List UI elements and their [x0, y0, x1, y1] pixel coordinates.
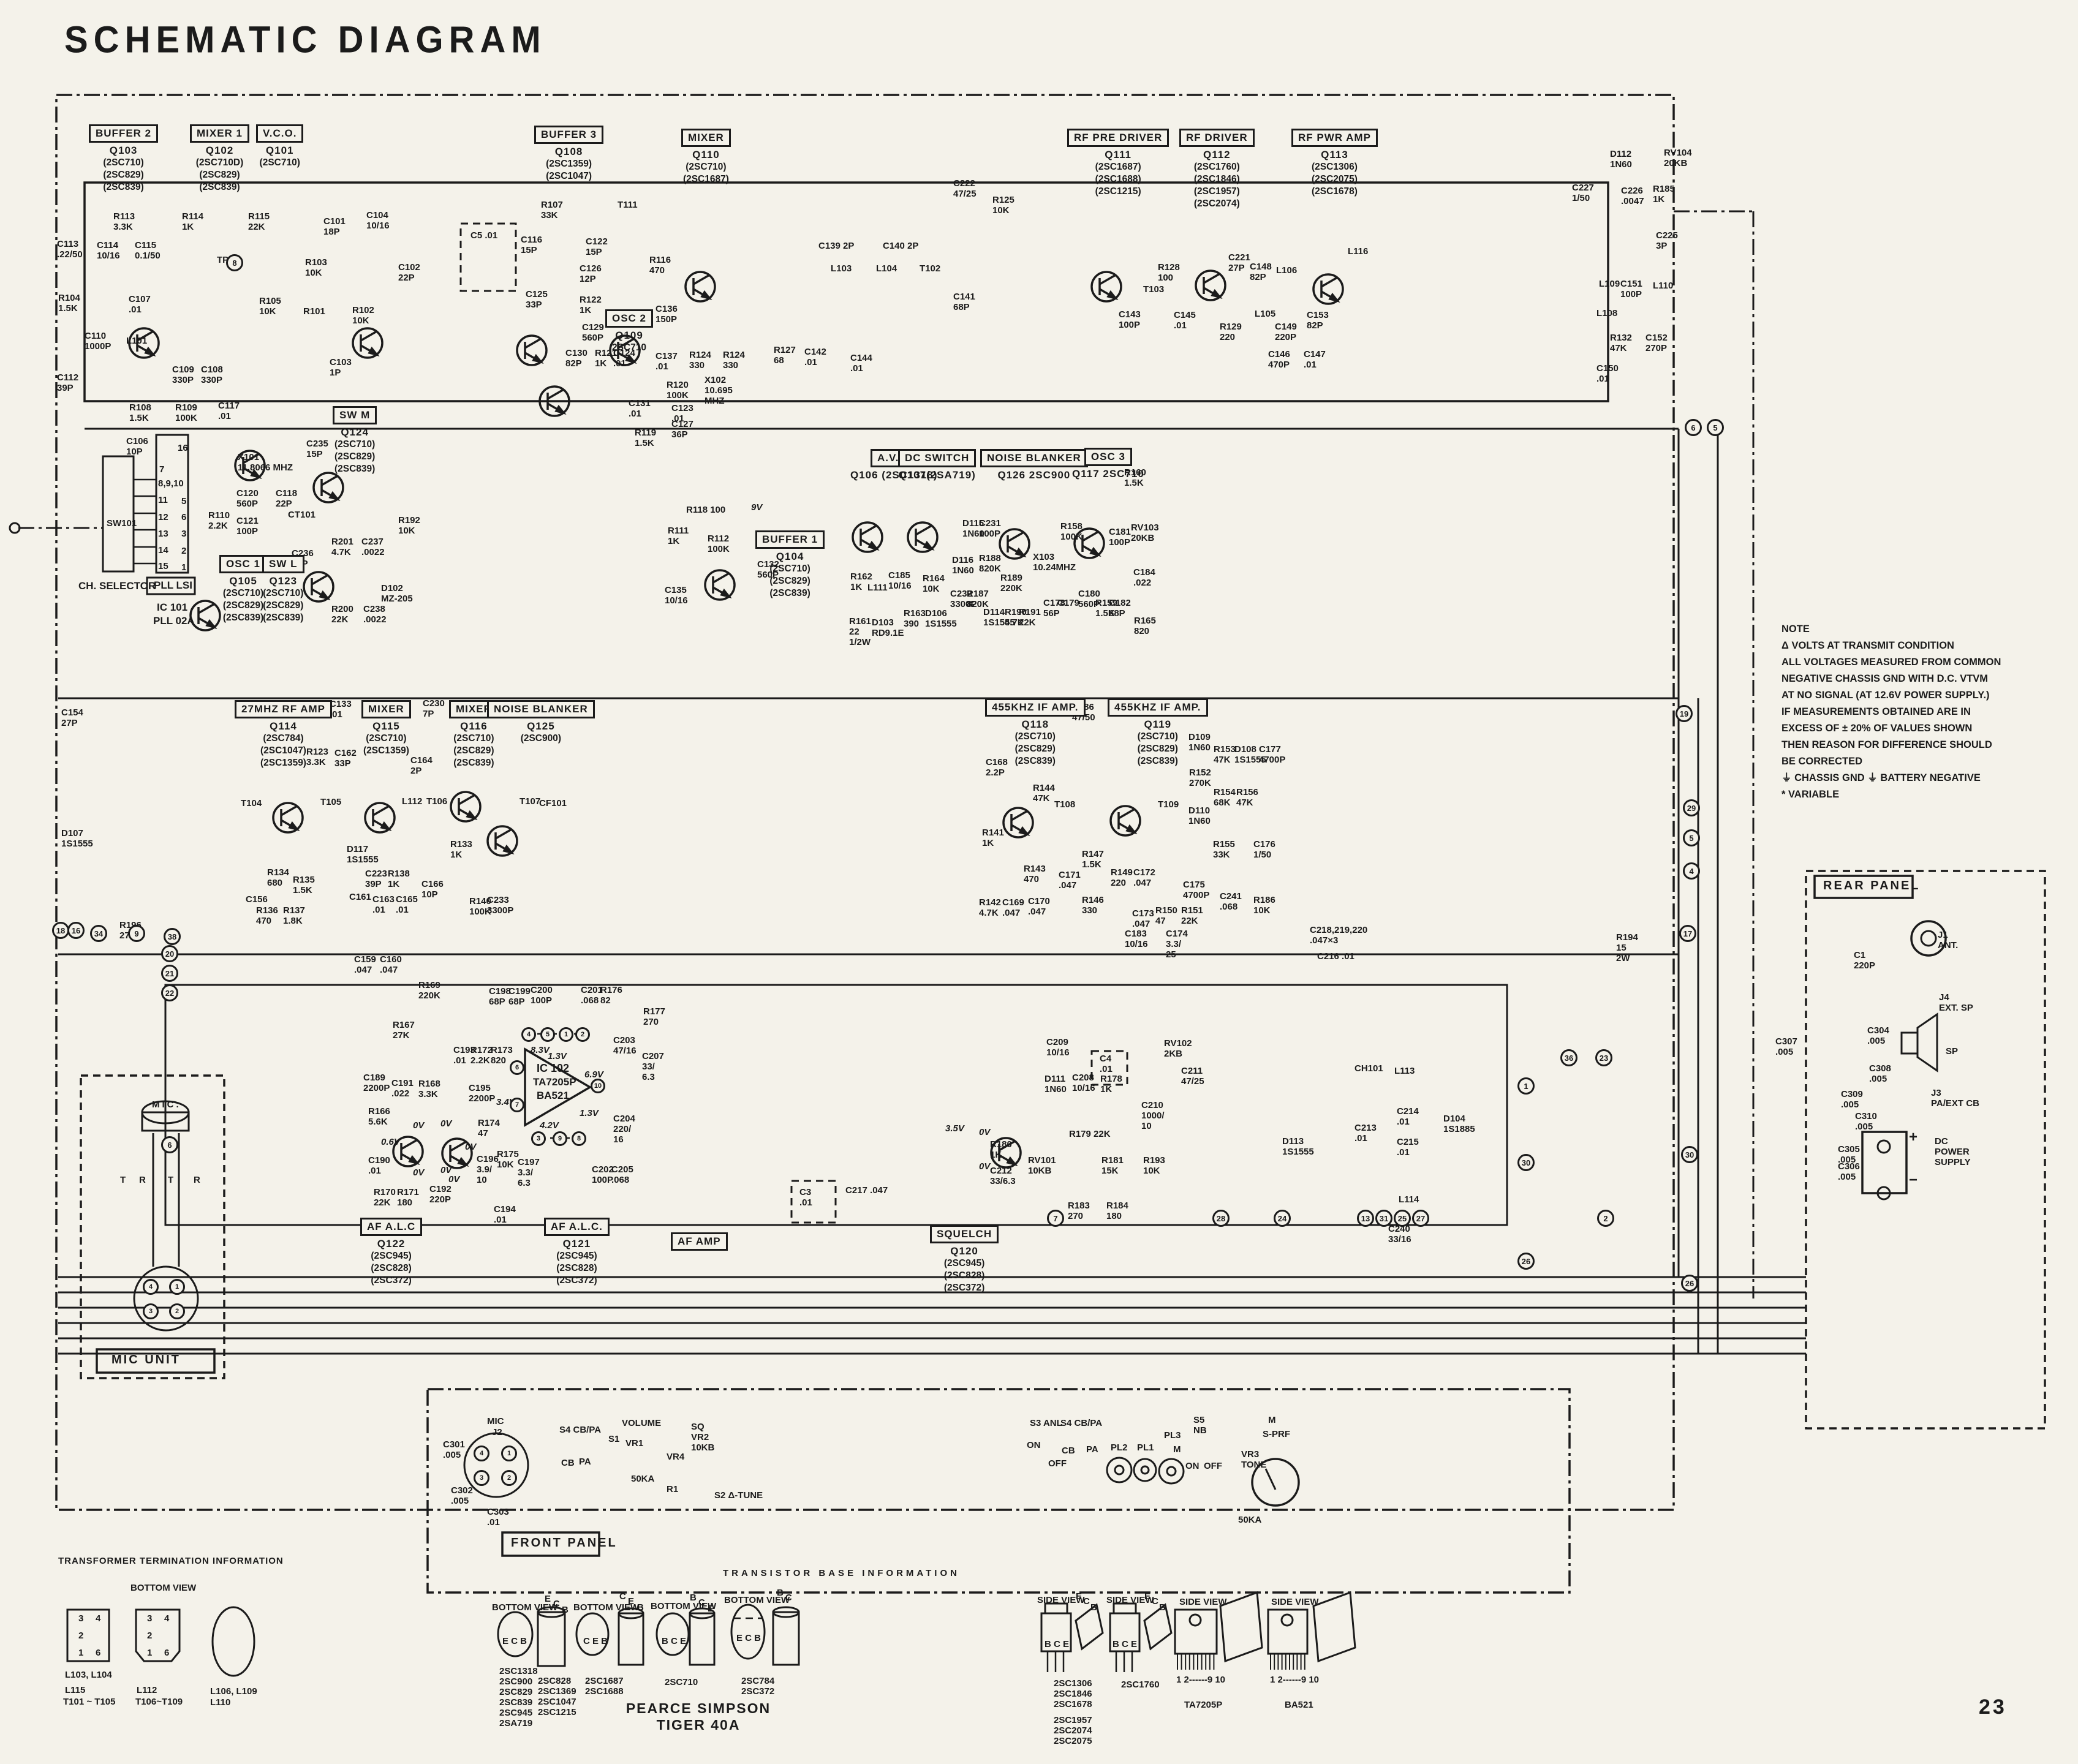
block-27mhz-rf-amp: 27MHZ RF AMPQ114(2SC784)(2SC1047)(2SC135… — [235, 700, 332, 769]
label-x103: X103 10.24MHZ — [1033, 552, 1076, 573]
label-c190: C190 .01 — [368, 1155, 390, 1176]
junction-1: 1 — [559, 1027, 573, 1042]
label-r179: R179 22K — [1069, 1129, 1111, 1139]
label-c107: C107 .01 — [129, 294, 151, 315]
label-l116: L116 — [1348, 246, 1368, 257]
label-d107: D107 1S1555 — [61, 828, 93, 849]
label-rv102: RV102 2KB — [1164, 1038, 1192, 1059]
label-c151: C151 100P — [1620, 279, 1642, 300]
label-m: M — [1173, 1444, 1181, 1455]
label-c179: C179 — [1057, 598, 1079, 608]
label-c211: C211 47/25 — [1181, 1066, 1204, 1087]
block-transistor-type: (2SC1359) — [235, 757, 332, 769]
label-r189: R189 220K — [1000, 573, 1022, 594]
label-c303: C303 .01 — [487, 1507, 509, 1528]
label-r174: R174 47 — [478, 1118, 500, 1139]
label-d112: D112 1N60 — [1610, 149, 1632, 170]
block-transistor-type: (2SC2074) — [1179, 198, 1255, 210]
block-title: 455KHZ IF AMP. — [985, 698, 1086, 717]
block-transistor-ref: Q102 — [190, 145, 249, 157]
block-transistor-type: (2SC829) — [333, 451, 377, 463]
label-pl2: PL2 — [1111, 1442, 1128, 1453]
label-ba521: BA521 — [537, 1090, 569, 1101]
block-transistor-type: (2SC829) — [219, 600, 267, 612]
label-r109: R109 100K — [175, 402, 197, 423]
label-bottom: BOTTOM VIEW — [651, 1601, 716, 1611]
label-r167: R167 27K — [393, 1020, 415, 1041]
label-ch101: CH101 — [1354, 1063, 1383, 1074]
label-c148: C148 82P — [1250, 262, 1272, 282]
label-sq: SQ VR2 10KB — [691, 1422, 714, 1453]
label-8-3v: 8.3V — [531, 1045, 550, 1055]
label-c218-219-220: C218,219,220 .047×3 — [1310, 925, 1367, 946]
block-transistor-type: (2SC1306) — [1291, 161, 1378, 173]
junction-1: 1 — [169, 1279, 185, 1295]
label-14: 14 — [158, 545, 168, 556]
label-b: B C E — [1045, 1639, 1069, 1649]
label-16: 16 — [178, 443, 188, 453]
label-t104: T104 — [241, 798, 262, 809]
label-l103: L103, L104 — [65, 1670, 112, 1680]
label-c: C — [1083, 1596, 1090, 1607]
label-2sc784: 2SC784 2SC372 — [741, 1676, 774, 1697]
label-r107: R107 33K — [541, 200, 563, 221]
transistor-symbol — [1111, 806, 1140, 835]
label-volume: VOLUME — [622, 1418, 661, 1428]
label-r132: R132 47K — [1610, 333, 1632, 353]
label-c141: C141 68P — [953, 292, 975, 312]
label-pll: PLL LSI — [154, 580, 192, 590]
label-4: 4 — [164, 1613, 169, 1624]
block-transistor-ref: Q112 — [1179, 149, 1255, 161]
block-transistor-ref: Q104 — [755, 551, 825, 563]
junction-5: 5 — [1707, 419, 1724, 436]
junction-5: 5 — [1683, 829, 1700, 846]
label-c150: C150 .01 — [1596, 363, 1619, 384]
block-transistor-type: (2SC839) — [985, 755, 1086, 767]
block-transistor-type: (2SC1359) — [361, 745, 411, 757]
label-c230: C230 7P — [423, 698, 445, 719]
label-r186: R186 10K — [1253, 895, 1275, 916]
block-transistor-ref: Q124 — [333, 426, 377, 439]
label-c121: C121 100P — [236, 516, 259, 537]
label-d111: D111 1N60 — [1045, 1074, 1067, 1095]
junction-9: 9 — [553, 1131, 567, 1146]
label-l106: L106, L109 — [210, 1686, 257, 1697]
transistor-symbol — [451, 792, 480, 821]
label-c144: C144 .01 — [850, 353, 872, 374]
label-r156: R156 47K — [1236, 787, 1258, 808]
label-c115: C115 0.1/50 — [135, 240, 161, 261]
label-c104: C104 10/16 — [366, 210, 390, 231]
label-r129: R129 220 — [1220, 322, 1242, 342]
block-transistor-ref: Q111 — [1067, 149, 1169, 161]
label-r108: R108 1.5K — [129, 402, 151, 423]
block-transistor-type: (2SC710) — [361, 733, 411, 745]
block-transistor-ref: Q121 — [544, 1238, 610, 1250]
transistor-symbol — [853, 522, 882, 552]
transistor-symbol — [908, 522, 937, 552]
transistor-symbol — [705, 570, 735, 600]
block-osc-1: OSC 1Q105(2SC710)(2SC829)(2SC839) — [219, 555, 267, 624]
label-r161: R161 22 1/2W — [849, 616, 871, 647]
block-transistor-type: (2SC839) — [262, 612, 304, 624]
junction-7: 7 — [510, 1098, 524, 1112]
block-transistor-type: (2SC784) — [235, 733, 332, 745]
block-transistor-ref: Q101 — [256, 145, 303, 157]
label-c301: C301 .005 — [443, 1439, 465, 1460]
block-buffer-3: BUFFER 3Q108(2SC1359)(2SC1047) — [534, 126, 603, 183]
label-x102: X102 10.695 MHZ — [705, 375, 733, 406]
label-b: B — [777, 1588, 784, 1598]
label-vr3: VR3 TONE — [1241, 1449, 1266, 1470]
label-front: FRONT PANEL — [511, 1538, 618, 1548]
block-rf-pre-driver: RF PRE DRIVERQ111(2SC1687)(2SC1688)(2SC1… — [1067, 129, 1169, 198]
junction-26: 26 — [1517, 1253, 1535, 1270]
block-transistor-type: (2SC1047) — [534, 170, 603, 183]
label-c125: C125 33P — [526, 289, 548, 310]
label-t109: T109 — [1158, 799, 1179, 810]
label-1: 1 2------9 10 — [1176, 1675, 1225, 1685]
label-l104: L104 — [876, 263, 897, 274]
label-r102: R102 10K — [352, 305, 374, 326]
label-0v: 0V — [465, 1142, 476, 1152]
block-mixer-1: MIXER 1Q102(2SC710D)(2SC829)(2SC839) — [190, 124, 249, 194]
label-r128: R128 100 — [1158, 262, 1180, 283]
block-af-a-l-c: AF A.L.CQ122(2SC945)(2SC828)(2SC372) — [360, 1218, 422, 1287]
block-title: RF PRE DRIVER — [1067, 129, 1169, 147]
label-r105: R105 10K — [259, 296, 281, 317]
label-ic: IC 102 — [537, 1063, 569, 1074]
label-ct101: CT101 — [288, 510, 315, 520]
label-s-prf: S-PRF — [1263, 1429, 1290, 1439]
label-c199: C199 68P — [508, 986, 531, 1007]
label-c164: C164 2P — [410, 755, 433, 776]
label-r144: R144 47K — [1033, 783, 1055, 804]
label-3: 3 — [147, 1613, 152, 1624]
block-transistor-type: (2SC1846) — [1179, 173, 1255, 186]
label-d117: D117 1S1555 — [347, 844, 379, 865]
block-transistor-type: (2SC1957) — [1179, 186, 1255, 198]
junction-28: 28 — [1212, 1210, 1230, 1227]
label-c152: C152 270P — [1645, 333, 1668, 353]
label-c191: C191 .022 — [391, 1078, 414, 1099]
label-c137: C137 .01 — [656, 351, 678, 372]
label-j1: J1 ANT. — [1938, 930, 1958, 951]
label-c135: C135 10/16 — [665, 585, 688, 606]
block-transistor-ref: Q107(2SA719) — [898, 469, 976, 481]
transistor-symbol — [1092, 272, 1121, 301]
block-transistor-type: (2SC829) — [1108, 743, 1208, 755]
block-transistor-ref: Q115 — [361, 720, 411, 733]
label-c183: C183 10/16 — [1125, 929, 1148, 949]
label-c163: C163 .01 — [372, 894, 395, 915]
label-ch: CH. SELECTOR — [78, 581, 156, 591]
label-c200: C200 100P — [531, 985, 553, 1006]
label-11: 11 — [158, 495, 168, 505]
label-2sc1306: 2SC1306 2SC1846 2SC1678 — [1054, 1678, 1092, 1709]
label-c140: C140 2P — [883, 241, 918, 251]
label-c238: C238 .0022 — [363, 604, 387, 625]
block-sw-m: SW MQ124(2SC710)(2SC829)(2SC839) — [333, 406, 377, 475]
block-transistor-ref: Q114 — [235, 720, 332, 733]
label-j4: J4 EXT. SP — [1939, 992, 1973, 1013]
block-transistor-ref: Q119 — [1108, 718, 1208, 731]
junction-1: 1 — [1517, 1077, 1535, 1095]
label-c240: C240 33/16 — [1388, 1224, 1411, 1245]
label-r103: R103 10K — [305, 257, 327, 278]
block-transistor-type: (2SC1687) — [681, 173, 731, 186]
label-c156: C156 — [246, 894, 268, 905]
label-c202: C202 100P — [592, 1164, 614, 1185]
label-6-9v: 6.9V — [584, 1069, 603, 1080]
label-c172: C172 .047 — [1133, 867, 1155, 888]
label-ta7205p: TA7205P — [533, 1077, 576, 1087]
junction-31: 31 — [1375, 1210, 1392, 1227]
label-b: B C E — [1113, 1639, 1137, 1649]
label-c209: C209 10/16 — [1046, 1037, 1070, 1058]
label-c184: C184 .022 — [1133, 567, 1155, 588]
label-2sc1318: 2SC1318 2SC900 2SC829 2SC839 2SC945 2SA7… — [499, 1666, 538, 1728]
block-dc-switch: DC SWITCHQ107(2SA719) — [898, 449, 976, 481]
block-transistor-ref: Q122 — [360, 1238, 422, 1250]
label-r135: R135 1.5K — [293, 875, 315, 895]
label-13: 13 — [158, 529, 168, 539]
junction-29: 29 — [1683, 799, 1700, 816]
junction-3: 3 — [531, 1131, 546, 1146]
label-l113: L113 — [1394, 1066, 1415, 1076]
junction-8: 8 — [226, 254, 243, 271]
label-c166: C166 10P — [421, 879, 444, 900]
label-d102: D102 MZ-205 — [381, 583, 413, 604]
label-c: C — [1152, 1596, 1158, 1607]
label-l112: L112 — [137, 1685, 157, 1695]
block-transistor-ref: Q120 — [930, 1245, 999, 1257]
label-6: 6 — [164, 1648, 169, 1658]
junction-36: 36 — [1560, 1049, 1577, 1066]
label-12: 12 — [158, 512, 168, 522]
block-transistor-type: (2SC828) — [544, 1262, 610, 1275]
junction-6: 6 — [510, 1060, 524, 1075]
transistor-symbol — [353, 328, 382, 358]
block-af-amp: AF AMP — [671, 1232, 728, 1251]
junction-3: 3 — [143, 1303, 159, 1319]
label-c112: C112 39P — [57, 372, 78, 393]
label-s2: S2 Δ-TUNE — [714, 1490, 763, 1501]
transistor-symbol — [304, 572, 333, 601]
label-pl1: PL1 — [1137, 1442, 1154, 1453]
label-r104: R104 1.5K — [58, 293, 80, 314]
label-r176: R176 82 — [600, 985, 622, 1006]
block-transistor-ref: Q105 — [219, 575, 267, 587]
block-transistor-type: (2SC945) — [930, 1257, 999, 1270]
label-2sc1687: 2SC1687 2SC1688 — [585, 1676, 624, 1697]
label-pl3: PL3 — [1164, 1430, 1181, 1441]
block-transistor-type: (2SC1688) — [1067, 173, 1169, 186]
label-r178: R178 1K — [1100, 1074, 1122, 1095]
label-c161: C161 — [349, 892, 371, 902]
label-c310: C310 .005 — [1855, 1111, 1877, 1132]
label-l110: L110 — [1653, 281, 1673, 291]
label-c196: C196 3.9/ 10 — [477, 1154, 499, 1185]
label-t106-t109: T106~T109 — [135, 1697, 183, 1707]
label-c185: C185 10/16 — [888, 570, 912, 591]
label-c176: C176 1/50 — [1253, 839, 1275, 860]
label-b: B — [637, 1602, 644, 1613]
label-c195: C195 2200P — [469, 1083, 495, 1104]
label-d106: D106 1S1555 — [925, 608, 957, 629]
junction-38: 38 — [164, 928, 181, 945]
block-transistor-type: (2SC839) — [449, 757, 499, 769]
label-2sc828: 2SC828 2SC1369 2SC1047 2SC1215 — [538, 1676, 576, 1717]
block-transistor-type: (2SC829) — [89, 169, 158, 181]
label-d110: D110 1N60 — [1188, 805, 1211, 826]
label-c142: C142 .01 — [804, 347, 826, 367]
label-1: 1 2------9 10 — [1270, 1675, 1319, 1685]
label-r165: R165 820 — [1134, 616, 1156, 636]
label-c114: C114 10/16 — [97, 240, 120, 261]
transistor-symbol — [365, 803, 395, 832]
label-r141: R141 1K — [982, 827, 1004, 848]
label-2: 2 — [147, 1630, 152, 1641]
label-c: C — [698, 1597, 705, 1608]
label-c174: C174 3.3/ 25 — [1166, 929, 1188, 960]
label-r166: R166 5.6K — [368, 1106, 390, 1127]
label-r124: R124 330 — [689, 350, 711, 371]
schematic-page: SCHEMATIC DIAGRAM 23 PEARCE SIMPSON TIGE… — [0, 0, 2078, 1764]
label-r150: R150 47 — [1155, 905, 1177, 926]
label-c216: C216 .01 — [1317, 951, 1354, 962]
block-transistor-type: (2SC839) — [89, 181, 158, 194]
label-c227: C227 1/50 — [1572, 183, 1594, 203]
label-c221: C221 27P — [1228, 252, 1250, 273]
label-c123: C123 .01 — [671, 403, 693, 424]
block-transistor-ref: Q125 — [487, 720, 595, 733]
block-transistor-type: (2SC710) — [985, 731, 1086, 743]
block-transistor-type: (2SC829) — [449, 745, 499, 757]
block-title: V.C.O. — [256, 124, 303, 143]
label-r112: R112 100K — [708, 533, 730, 554]
label-r155: R155 33K — [1213, 839, 1235, 860]
junction-30: 30 — [1517, 1154, 1535, 1171]
label-r122: R122 1K — [580, 295, 602, 315]
label-2sc1760: 2SC1760 — [1121, 1679, 1160, 1690]
label-6: 6 — [181, 512, 186, 522]
label-c233: C233 3300P — [487, 895, 513, 916]
label-m: M — [1268, 1415, 1276, 1425]
label-d103: D103 RD9.1E — [872, 617, 904, 638]
label-l105: L105 — [1255, 309, 1275, 319]
label-c173: C173 .047 — [1132, 908, 1154, 929]
label-r118: R118 100 — [686, 505, 725, 515]
junction-3: 3 — [474, 1470, 489, 1486]
label-r168: R168 3.3K — [418, 1079, 440, 1099]
label-c122: C122 15P — [586, 236, 608, 257]
label-l114: L114 — [1399, 1194, 1419, 1205]
label-x101: X101 11.8066 MHZ — [238, 452, 293, 473]
label-3-5v: 3.5V — [945, 1123, 964, 1134]
label-2: 2 — [78, 1630, 83, 1641]
label-c109: C109 330P — [172, 364, 194, 385]
label-r125: R125 10K — [992, 195, 1014, 216]
label-ta7205p: TA7205P — [1184, 1700, 1222, 1710]
block-title: RF DRIVER — [1179, 129, 1255, 147]
label-cf101: CF101 — [539, 798, 567, 809]
label-c113: C113 .22/50 — [57, 239, 83, 260]
label-c306: C306 .005 — [1838, 1161, 1860, 1182]
label-l101: L101 — [126, 336, 147, 346]
label-c149: C149 220P — [1275, 322, 1297, 342]
junction-34: 34 — [90, 925, 107, 942]
junction-10: 10 — [591, 1079, 605, 1093]
label-c126: C126 12P — [580, 263, 602, 284]
label-rv104: RV104 20KB — [1664, 148, 1692, 168]
block-transistor-type: (2SC945) — [360, 1250, 422, 1262]
label-4: 4 — [96, 1613, 100, 1624]
label-r172: R172 2.2K — [470, 1045, 493, 1066]
label-l109: L109 — [1599, 279, 1620, 289]
label-c130: C130 82P — [565, 348, 588, 369]
block-transistor-type: (2SC372) — [544, 1275, 610, 1287]
label-c170: C170 .047 — [1028, 896, 1050, 917]
label-t105: T105 — [320, 797, 341, 807]
label-c241: C241 .068 — [1220, 891, 1242, 912]
label-e: E — [708, 1604, 714, 1614]
junction-17: 17 — [1679, 925, 1696, 942]
label-c223: C223 39P — [365, 869, 387, 889]
junction-2: 2 — [169, 1303, 185, 1319]
block-title: OSC 1 — [219, 555, 267, 573]
label-4-2v: 4.2V — [540, 1120, 559, 1131]
label-c194: C194 .01 — [494, 1204, 516, 1225]
block-transistor-type: (2SC839) — [219, 612, 267, 624]
block-transistor-type: (2SC828) — [930, 1270, 999, 1282]
label-transistor: TRANSISTOR BASE INFORMATION — [723, 1568, 960, 1578]
junction-16: 16 — [67, 922, 85, 939]
label-c117: C117 .01 — [218, 401, 240, 421]
block-transistor-type: (2SC1687) — [1067, 161, 1169, 173]
block-transistor-type: (2SC1359) — [534, 158, 603, 170]
transistor-symbol — [314, 473, 343, 502]
label-0v: 0V — [448, 1174, 459, 1185]
junction-2: 2 — [575, 1027, 590, 1042]
label-l103: L103 — [831, 263, 852, 274]
label-t111: T111 — [618, 200, 638, 210]
junction-4: 4 — [474, 1445, 489, 1461]
label-c106: C106 10P — [126, 436, 148, 457]
label-t: T — [168, 1175, 173, 1185]
label-r151: R151 22K — [1181, 905, 1203, 926]
label-1: 1 — [147, 1648, 152, 1658]
label-c235: C235 15P — [306, 439, 328, 459]
block-title: MIXER 1 — [190, 124, 249, 143]
junction-18: 18 — [52, 922, 69, 939]
label-r: R — [139, 1175, 146, 1185]
block-transistor-type: (2SC829) — [985, 743, 1086, 755]
block-transistor-type: (2SC1678) — [1291, 186, 1378, 198]
block-osc-2: OSC 2Q1092SC710 — [605, 309, 653, 354]
label-c154: C154 27P — [61, 707, 83, 728]
block-transistor-type: (2SC839) — [333, 463, 377, 475]
label-s4: S4 CB/PA — [1060, 1418, 1102, 1428]
label-r146: R146 330 — [1082, 895, 1104, 916]
label-c116: C116 15P — [521, 235, 542, 255]
block-455khz-if-amp: 455KHZ IF AMP.Q118(2SC710)(2SC829)(2SC83… — [985, 698, 1086, 767]
label-c201: C201 .068 — [581, 985, 603, 1006]
label-e: E C B — [502, 1636, 527, 1646]
block-transistor-type: (2SC839) — [755, 587, 825, 600]
block-transistor-ref: Q110 — [681, 149, 731, 161]
